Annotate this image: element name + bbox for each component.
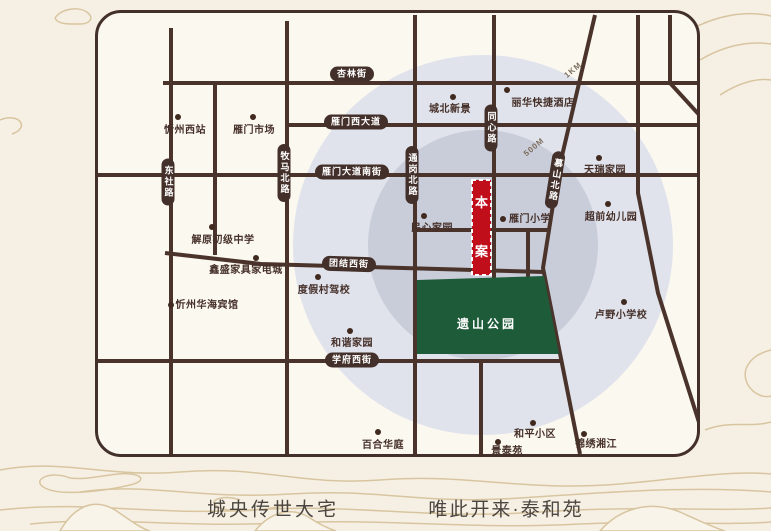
site-label-char1: 本 bbox=[475, 195, 488, 210]
footer: 城央传世大宅 开 来 唯此开来·泰和苑 bbox=[0, 480, 771, 531]
park-label: 遗山公园 bbox=[456, 316, 517, 331]
site-label-char2: 案 bbox=[474, 244, 489, 259]
brochure-page: { "colors": { "page_bg": "#f6f0e4", "wav… bbox=[0, 0, 771, 531]
tagline-left: 城央传世大宅 bbox=[207, 495, 339, 522]
site-marker: 本 案 bbox=[472, 180, 491, 275]
park-area bbox=[417, 276, 559, 354]
tagline-right: 唯此开来·泰和苑 bbox=[428, 495, 583, 522]
road-northeast-corner bbox=[670, 15, 697, 119]
map-canvas: 遗山公园 本 案 bbox=[98, 13, 697, 454]
map-frame: 遗山公园 本 案 bbox=[95, 10, 700, 457]
